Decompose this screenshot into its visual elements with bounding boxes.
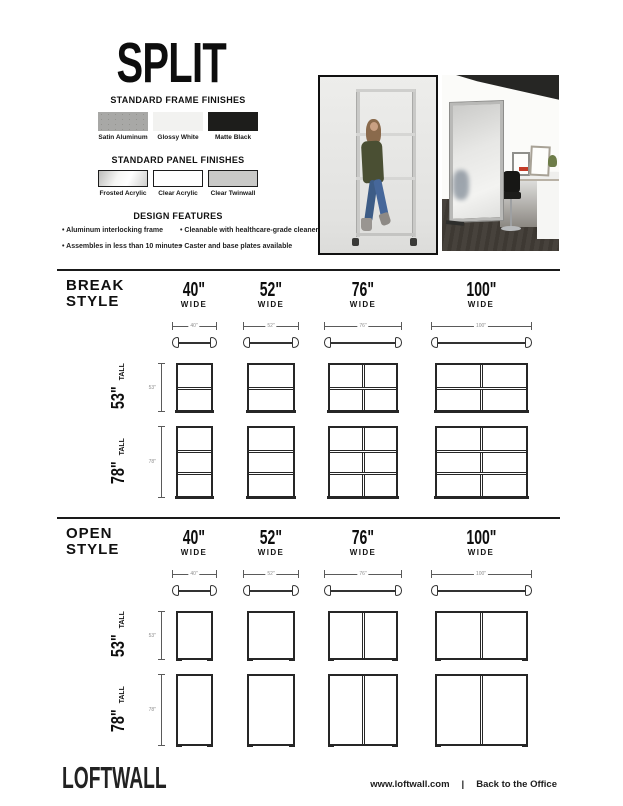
height-dimension-label: 53" bbox=[149, 633, 156, 639]
panel-diagram-open-76x53 bbox=[328, 611, 398, 660]
panel-diagram-open-40x78 bbox=[176, 674, 213, 746]
finish-swatch: Satin Aluminum bbox=[98, 112, 148, 141]
width-dimension-line: 40" bbox=[172, 574, 217, 575]
swatch-label: Matte Black bbox=[208, 134, 258, 141]
stool-base bbox=[501, 226, 521, 231]
panel-diagram-open-76x78 bbox=[328, 674, 398, 746]
caster-wheel bbox=[410, 238, 417, 246]
height-label-break: 53"TALL bbox=[96, 363, 140, 412]
product-photo-clear-divider bbox=[318, 75, 438, 255]
loftwall-logo: LOFTWALL bbox=[62, 760, 231, 796]
base-plate-top-view bbox=[324, 585, 402, 598]
width-dimension-line: 52" bbox=[243, 326, 299, 327]
height-dimension-label: 78" bbox=[149, 459, 156, 465]
height-value: 78" bbox=[108, 461, 129, 484]
frame-finishes-heading: STANDARD FRAME FINISHES bbox=[58, 95, 298, 105]
width-dimension-line: 100" bbox=[431, 326, 532, 327]
width-dimension-label: 100" bbox=[474, 571, 488, 577]
footer-url-link[interactable]: www.loftwall.com bbox=[370, 779, 449, 790]
caster-wheel bbox=[352, 238, 359, 246]
width-value: 100" bbox=[466, 528, 496, 548]
silhouette-behind-panel bbox=[453, 170, 469, 200]
design-features-heading: DESIGN FEATURES bbox=[58, 211, 298, 221]
column-width-header: 52"WIDE bbox=[226, 280, 316, 309]
width-unit-label: WIDE bbox=[436, 300, 526, 309]
swatch-color bbox=[153, 170, 203, 187]
width-unit-label: WIDE bbox=[318, 548, 408, 557]
section-rule bbox=[57, 269, 560, 271]
panel-diagram-open-52x78 bbox=[247, 674, 295, 746]
column-width-header: 76"WIDE bbox=[318, 528, 408, 557]
swatch-label: Frosted Acrylic bbox=[98, 190, 148, 197]
width-dimension-label: 40" bbox=[188, 571, 199, 577]
stool-seat bbox=[501, 192, 521, 199]
height-label-break: 78"TALL bbox=[96, 426, 140, 498]
stool-pole bbox=[510, 199, 512, 227]
design-feature: Cleanable with healthcare-grade cleaners bbox=[180, 227, 322, 234]
height-dimension-line: 78" bbox=[161, 426, 162, 498]
design-feature: Assembles in less than 10 minutes bbox=[62, 243, 182, 250]
desk-accessory-red bbox=[519, 167, 528, 171]
footer-links: www.loftwall.com | Back to the Office bbox=[370, 779, 557, 790]
divider-frame bbox=[450, 101, 503, 222]
divider-frame-rail bbox=[356, 233, 415, 236]
spec-sheet-page: SPLIT STANDARD FRAME FINISHES Satin Alum… bbox=[0, 0, 623, 806]
panel-diagram-break-100x53 bbox=[435, 363, 528, 412]
width-unit-label: WIDE bbox=[226, 300, 316, 309]
panel-diagram-break-52x78 bbox=[247, 426, 295, 498]
divider-frame-rail bbox=[356, 133, 415, 136]
width-value: 76" bbox=[352, 280, 374, 300]
height-value: 53" bbox=[108, 634, 129, 657]
section-title-break: BREAKSTYLE bbox=[66, 278, 124, 310]
panel-diagram-break-76x78 bbox=[328, 426, 398, 498]
divider-frame-rail bbox=[356, 89, 415, 92]
section-title-line: STYLE bbox=[66, 294, 124, 310]
finish-swatch: Clear Acrylic bbox=[153, 170, 203, 197]
page-title: SPLIT bbox=[60, 30, 282, 96]
width-value: 40" bbox=[183, 528, 205, 548]
panel-diagram-break-40x53 bbox=[176, 363, 213, 412]
width-dimension-line: 40" bbox=[172, 326, 217, 327]
design-feature: Caster and base plates available bbox=[180, 243, 322, 250]
base-plate-top-view bbox=[243, 585, 299, 598]
section-title-open: OPENSTYLE bbox=[66, 526, 119, 558]
finish-swatch: Frosted Acrylic bbox=[98, 170, 148, 197]
height-unit-label: TALL bbox=[119, 686, 126, 703]
column-width-header: 100"WIDE bbox=[436, 280, 526, 309]
width-dimension-label: 52" bbox=[265, 323, 276, 329]
footer-separator: | bbox=[462, 779, 465, 790]
swatch-label: Satin Aluminum bbox=[98, 134, 148, 141]
width-dimension-label: 76" bbox=[357, 571, 368, 577]
swatch-color bbox=[208, 112, 258, 131]
height-dimension-label: 78" bbox=[149, 707, 156, 713]
stool-back bbox=[503, 171, 520, 193]
height-label-open: 78"TALL bbox=[96, 674, 140, 746]
panel-diagram-open-52x53 bbox=[247, 611, 295, 660]
height-value: 78" bbox=[108, 709, 129, 732]
swatch-color bbox=[98, 170, 148, 187]
base-plate-top-view bbox=[431, 585, 532, 598]
height-unit-label: TALL bbox=[119, 363, 126, 380]
width-unit-label: WIDE bbox=[226, 548, 316, 557]
panel-diagram-break-100x78 bbox=[435, 426, 528, 498]
panel-diagram-open-100x78 bbox=[435, 674, 528, 746]
width-dimension-line: 76" bbox=[324, 574, 402, 575]
design-feature: Aluminum interlocking frame bbox=[62, 227, 182, 234]
height-label-open: 53"TALL bbox=[96, 611, 140, 660]
person-boot bbox=[378, 212, 391, 227]
finish-swatch: Glossy White bbox=[153, 112, 203, 141]
base-plate-top-view bbox=[243, 337, 299, 350]
height-unit-label: TALL bbox=[119, 611, 126, 628]
base-plate-top-view bbox=[172, 585, 217, 598]
height-dimension-line: 53" bbox=[161, 363, 162, 412]
width-dimension-label: 40" bbox=[188, 323, 199, 329]
section-title-line: OPEN bbox=[66, 526, 119, 542]
product-photo-office-scene bbox=[442, 75, 559, 251]
height-value: 53" bbox=[108, 386, 129, 409]
panel-diagram-break-52x53 bbox=[247, 363, 295, 412]
width-unit-label: WIDE bbox=[436, 548, 526, 557]
swatch-color bbox=[98, 112, 148, 131]
base-plate-top-view bbox=[431, 337, 532, 350]
panel-diagram-open-40x53 bbox=[176, 611, 213, 660]
width-unit-label: WIDE bbox=[318, 300, 408, 309]
footer-office-link[interactable]: Back to the Office bbox=[476, 779, 557, 790]
plant bbox=[548, 155, 557, 167]
panel-diagram-break-76x53 bbox=[328, 363, 398, 412]
section-title-line: STYLE bbox=[66, 542, 119, 558]
column-width-header: 52"WIDE bbox=[226, 528, 316, 557]
height-dimension-label: 53" bbox=[149, 385, 156, 391]
base-plate-top-view bbox=[172, 337, 217, 350]
column-width-header: 100"WIDE bbox=[436, 528, 526, 557]
width-dimension-line: 100" bbox=[431, 574, 532, 575]
finish-swatch: Clear Twinwall bbox=[208, 170, 258, 197]
panel-diagram-break-40x78 bbox=[176, 426, 213, 498]
width-value: 40" bbox=[183, 280, 205, 300]
width-value: 76" bbox=[352, 528, 374, 548]
divider-frame-post bbox=[412, 89, 416, 237]
finish-swatch: Matte Black bbox=[208, 112, 258, 141]
width-dimension-label: 76" bbox=[357, 323, 368, 329]
width-dimension-line: 52" bbox=[243, 574, 299, 575]
width-value: 52" bbox=[260, 280, 282, 300]
width-value: 100" bbox=[466, 280, 496, 300]
width-dimension-line: 76" bbox=[324, 326, 402, 327]
swatch-label: Glossy White bbox=[153, 134, 203, 141]
divider-frame-post bbox=[356, 89, 360, 237]
panel-finishes-heading: STANDARD PANEL FINISHES bbox=[58, 155, 298, 165]
column-width-header: 76"WIDE bbox=[318, 280, 408, 309]
height-unit-label: TALL bbox=[119, 438, 126, 455]
width-value: 52" bbox=[260, 528, 282, 548]
width-dimension-label: 100" bbox=[474, 323, 488, 329]
desk-side-panel bbox=[537, 173, 559, 239]
base-plate-top-view bbox=[324, 337, 402, 350]
panel-diagram-open-100x53 bbox=[435, 611, 528, 660]
person-boot bbox=[361, 218, 372, 231]
swatch-color bbox=[208, 170, 258, 187]
swatch-color bbox=[153, 112, 203, 131]
person-face bbox=[370, 122, 378, 131]
person-torso bbox=[361, 140, 384, 183]
height-dimension-line: 78" bbox=[161, 674, 162, 746]
width-dimension-label: 52" bbox=[265, 571, 276, 577]
height-dimension-line: 53" bbox=[161, 611, 162, 660]
panel-finishes-swatches: Frosted AcrylicClear AcrylicClear Twinwa… bbox=[98, 170, 308, 197]
section-title-line: BREAK bbox=[66, 278, 124, 294]
frame-finishes-swatches: Satin AluminumGlossy WhiteMatte Black bbox=[98, 112, 308, 141]
swatch-label: Clear Acrylic bbox=[153, 190, 203, 197]
section-rule bbox=[57, 517, 560, 519]
swatch-label: Clear Twinwall bbox=[208, 190, 258, 197]
